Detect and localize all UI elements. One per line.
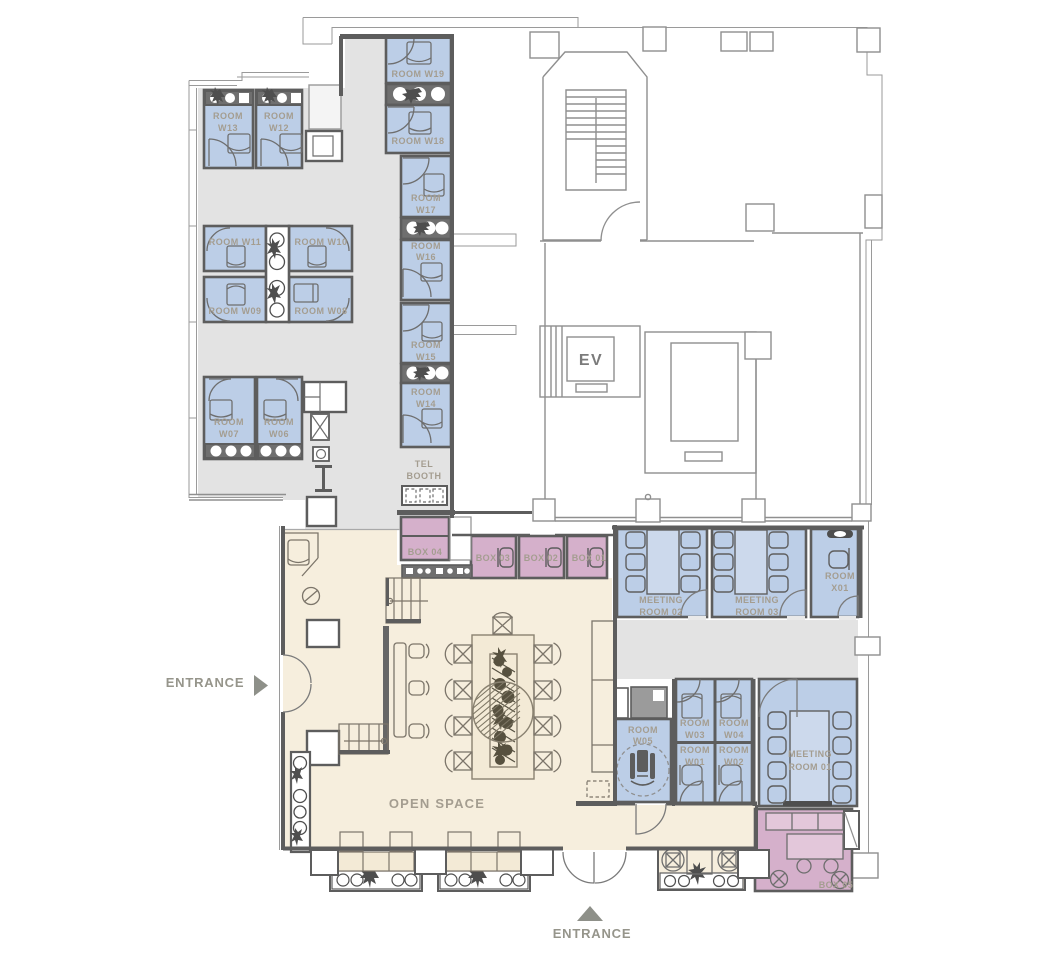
svg-text:W12: W12 [269, 123, 289, 133]
svg-text:ROOM W19: ROOM W19 [391, 69, 444, 79]
svg-text:BOOTH: BOOTH [407, 471, 442, 481]
svg-text:BOX 05: BOX 05 [819, 880, 853, 890]
svg-text:ENTRANCE: ENTRANCE [166, 675, 245, 690]
svg-text:ROOM: ROOM [719, 718, 749, 728]
svg-text:W05: W05 [633, 736, 653, 746]
svg-text:W04: W04 [724, 730, 744, 740]
svg-text:ROOM W08: ROOM W08 [294, 306, 347, 316]
svg-text:MEETING: MEETING [735, 595, 779, 605]
svg-text:ROOM: ROOM [719, 745, 749, 755]
svg-text:ROOM 03: ROOM 03 [735, 607, 778, 617]
svg-text:X01: X01 [831, 583, 849, 593]
svg-text:ROOM: ROOM [825, 571, 855, 581]
svg-text:TEL: TEL [415, 459, 434, 469]
svg-text:ROOM W18: ROOM W18 [391, 136, 444, 146]
svg-text:ROOM W10: ROOM W10 [294, 237, 347, 247]
svg-text:BOX 02: BOX 02 [524, 553, 558, 563]
svg-text:BOX 04: BOX 04 [408, 547, 442, 557]
svg-text:W14: W14 [416, 399, 436, 409]
svg-text:ROOM 02: ROOM 02 [639, 607, 682, 617]
svg-text:ROOM: ROOM [680, 718, 710, 728]
svg-text:EV: EV [579, 352, 603, 369]
svg-text:W03: W03 [685, 730, 705, 740]
svg-text:ENTRANCE: ENTRANCE [553, 926, 632, 941]
svg-text:W15: W15 [416, 352, 436, 362]
svg-text:W01: W01 [685, 757, 705, 767]
svg-text:ROOM: ROOM [264, 111, 294, 121]
svg-text:OPEN SPACE: OPEN SPACE [389, 796, 485, 811]
svg-text:W13: W13 [218, 123, 238, 133]
svg-text:ROOM W11: ROOM W11 [209, 237, 262, 247]
svg-text:MEETING: MEETING [788, 749, 832, 759]
svg-text:ROOM W09: ROOM W09 [208, 306, 261, 316]
svg-text:W17: W17 [416, 205, 436, 215]
svg-text:ROOM: ROOM [264, 417, 294, 427]
svg-text:BOX 01: BOX 01 [572, 553, 606, 563]
svg-text:W06: W06 [269, 429, 289, 439]
svg-text:ROOM: ROOM [411, 387, 441, 397]
svg-text:W02: W02 [724, 757, 744, 767]
svg-text:ROOM: ROOM [680, 745, 710, 755]
svg-text:ROOM: ROOM [214, 417, 244, 427]
svg-text:MEETING: MEETING [639, 595, 683, 605]
svg-text:ROOM: ROOM [213, 111, 243, 121]
svg-text:ROOM: ROOM [411, 193, 441, 203]
svg-text:ROOM 01: ROOM 01 [788, 762, 831, 772]
svg-text:ROOM: ROOM [411, 340, 441, 350]
svg-text:ROOM: ROOM [411, 241, 441, 251]
svg-text:W07: W07 [219, 429, 239, 439]
svg-text:BOX 03: BOX 03 [476, 553, 510, 563]
svg-text:ROOM: ROOM [628, 725, 658, 735]
svg-text:W16: W16 [416, 252, 436, 262]
